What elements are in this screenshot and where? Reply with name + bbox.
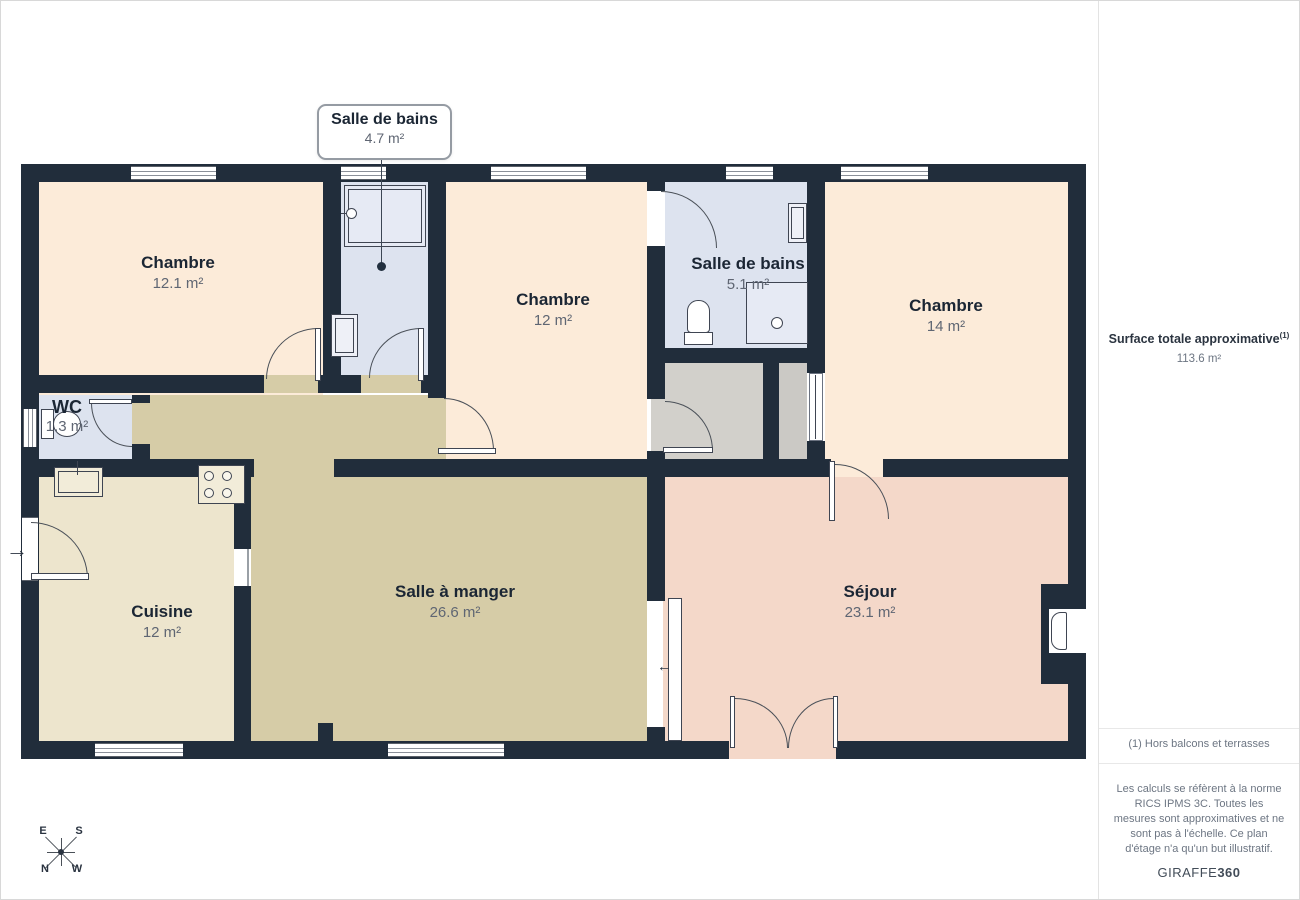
room-name: Salle de bains [648,254,848,274]
compass-letter-w: W [71,863,83,875]
room-name: WC [17,397,117,419]
room-area: 5.1 m² [648,277,848,294]
room-area: 12 m² [62,625,262,642]
room-area: 12.1 m² [78,276,278,293]
stove-burner [204,471,214,481]
sliding-door-arrow: ← [657,659,672,674]
door-leaf [438,448,496,454]
room-label-salle-a-manger: Salle à manger 26.6 m² [305,582,605,622]
total-surface-value: 113.6 m² [1104,353,1294,365]
pocket-door-line [247,549,249,586]
callout-salle-de-bains-1: Salle de bains 4.7 m² [317,104,452,160]
window [131,166,216,180]
wall-segment [428,164,446,398]
room-label-sejour: Séjour 23.1 m² [770,582,970,622]
room-area: 23.1 m² [770,605,970,622]
floor-hall [132,395,446,459]
shower-tray-inner [348,189,422,243]
compass-center-dot [58,849,64,855]
window [341,166,386,180]
wall-segment [132,395,150,403]
brand-suffix: 360 [1217,865,1240,880]
wall-segment [647,348,825,363]
room-label-chambre-3: Chambre 14 m² [846,296,1046,336]
shower-drain-line [341,213,347,214]
compass-letter-s: S [73,825,85,837]
door-leaf [315,328,321,381]
room-area: 26.6 m² [305,605,605,622]
stove-burner [222,488,232,498]
footnote-marker: (1) [1280,331,1290,340]
wall-segment [883,459,1068,477]
door-leaf [833,696,838,748]
door-leaf [730,696,735,748]
giraffe360-logo: GIRAFFE360 [1104,865,1294,880]
brand-name: GIRAFFE [1157,865,1217,880]
bathroom-sink-inner [791,207,804,239]
wall-segment [323,164,341,393]
room-name: Salle à manger [305,582,605,602]
wall-segment [647,727,665,759]
room-name: Chambre [846,296,1046,316]
wall-segment [334,459,831,477]
floor-closet-right [779,361,807,459]
wall-segment [763,348,779,459]
shower-drain [346,208,357,219]
compass-letter-n: N [39,863,51,875]
entrance-arrow: → [6,539,28,561]
window [95,743,183,757]
room-label-cuisine: Cuisine 12 m² [62,602,262,642]
footnote-text: (1) Hors balcons et terrasses [1104,738,1294,750]
bathroom-sink-inner [335,318,354,353]
room-name: Chambre [453,290,653,310]
closet-door [809,373,823,441]
door-leaf [418,328,424,381]
toilet [687,300,710,333]
room-name: Chambre [78,253,278,273]
room-area: 1.3 m² [17,419,117,436]
wall-segment [647,164,665,191]
callout-room-area: 4.7 m² [319,130,450,146]
room-label-chambre-2: Chambre 12 m² [453,290,653,330]
sidebar-separator [1098,1,1099,900]
room-label-salle-de-bains-2: Salle de bains 5.1 m² [648,254,848,294]
wall-segment [647,363,665,399]
stove-burner [222,471,232,481]
room-name: Cuisine [62,602,262,622]
window [491,166,586,180]
fireplace-insert [1051,612,1067,650]
shower-drain [771,317,783,329]
compass-letter-e: E [37,825,49,837]
door-leaf [829,461,835,521]
window [388,743,504,757]
callout-leader-line [381,154,382,266]
door-leaf [31,573,89,580]
door-leaf [663,447,713,453]
floorplan-page: ← → Chambre 12.1 m² Chambre 12 m² Salle … [0,0,1300,900]
room-label-wc: WC 1.3 m² [17,397,117,435]
kitchen-sink-inner [58,471,99,493]
room-name: Séjour [770,582,970,602]
room-label-chambre-1: Chambre 12.1 m² [78,253,278,293]
stove [198,465,245,504]
room-area: 12 m² [453,313,653,330]
total-surface-label: Surface totale approximative [1109,332,1280,346]
callout-room-name: Salle de bains [319,110,450,129]
callout-leader-dot [377,262,386,271]
wall-stub [318,723,333,759]
window [841,166,928,180]
divider [1099,728,1300,729]
room-area: 14 m² [846,319,1046,336]
kitchen-faucet-line [77,461,78,475]
divider [1099,763,1300,764]
window [726,166,773,180]
total-surface-title: Surface totale approximative(1) [1104,331,1294,346]
wall-segment [132,444,150,459]
compass-rose: E S N W [23,819,99,885]
closet-door-line [815,375,816,439]
stove-burner [204,488,214,498]
wall-segment [647,477,665,601]
toilet-tank [684,332,713,345]
disclaimer-text: Les calculs se réfèrent à la norme RICS … [1113,782,1285,857]
